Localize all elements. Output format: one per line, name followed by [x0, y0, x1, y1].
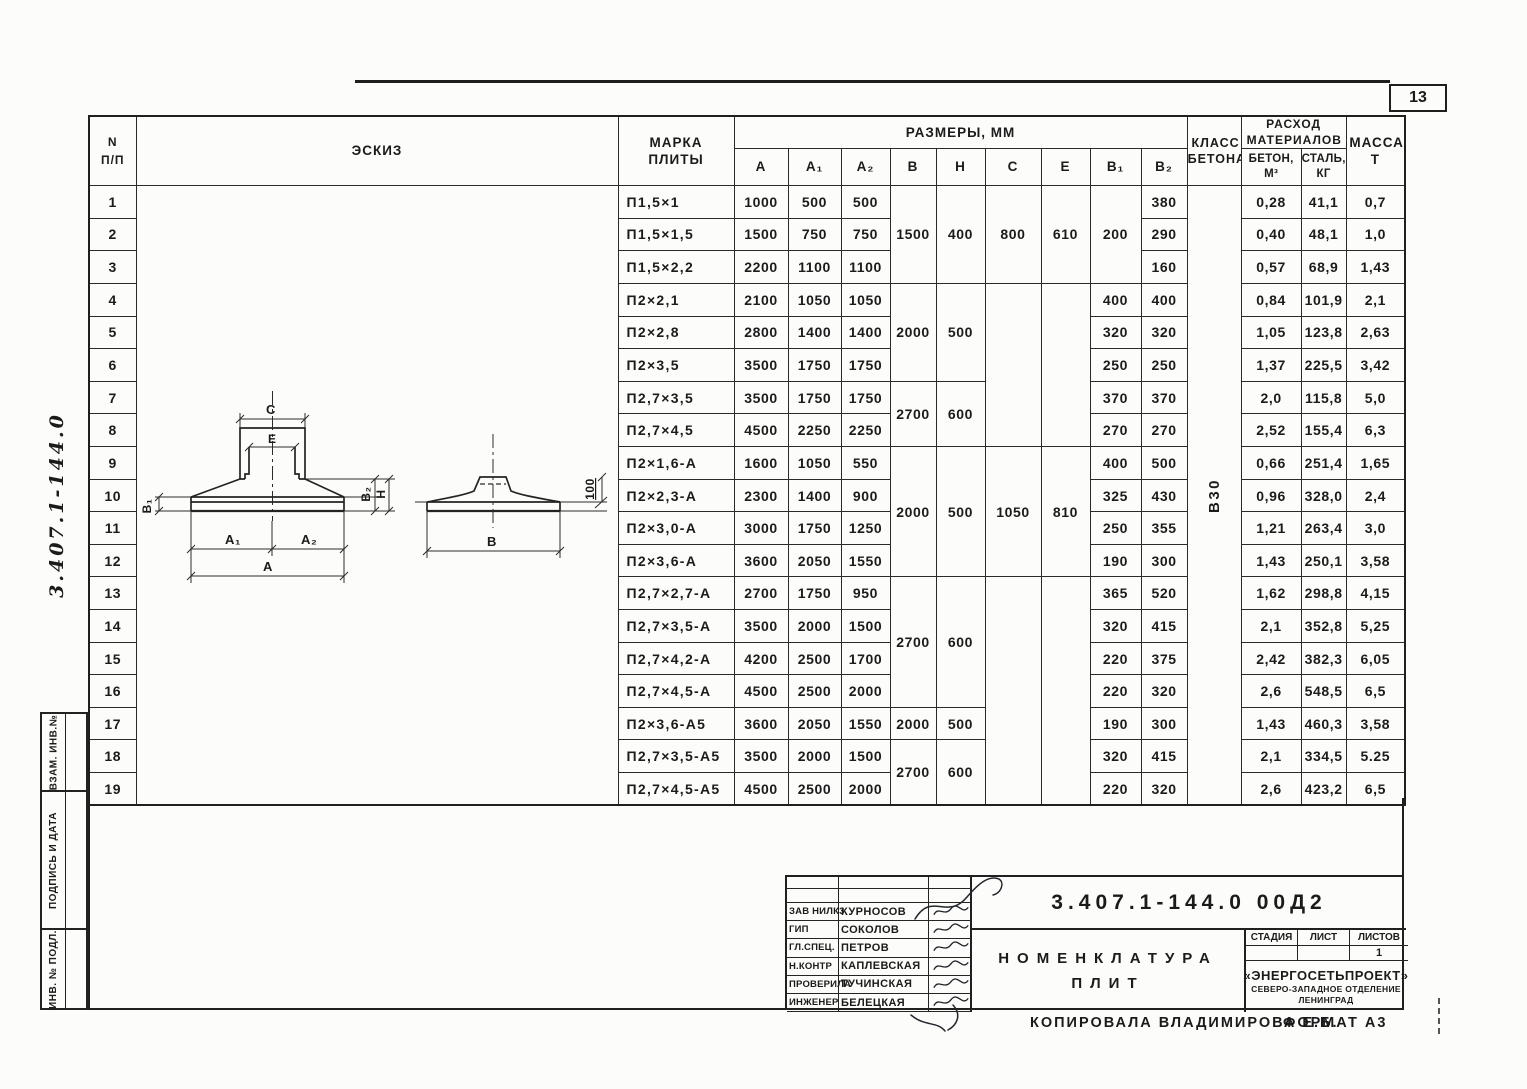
header-consumption: Расход материалов	[1241, 116, 1346, 149]
signature-role: ГИП	[787, 921, 839, 939]
table-cell: 300	[1141, 707, 1187, 740]
table-cell: 2000	[890, 707, 936, 740]
table-cell: 0,40	[1241, 218, 1301, 251]
table-cell: 4200	[734, 642, 788, 675]
table-cell: 220	[1090, 642, 1141, 675]
table-cell: 2,52	[1241, 414, 1301, 447]
signature-table: Зав НИЛК3Курносов ГИПСоколов Гл.спец.Пет…	[787, 877, 972, 1012]
mark-cell: П2,7×4,2-А	[618, 642, 734, 675]
table-cell: 220	[1090, 675, 1141, 708]
table-cell: 600	[936, 577, 985, 707]
table-cell: 13	[89, 577, 136, 610]
table-cell: 0,66	[1241, 446, 1301, 479]
table-cell: 520	[1141, 577, 1187, 610]
table-cell: 500	[841, 186, 890, 219]
fold-mark	[1438, 998, 1440, 1034]
table-cell: 548,5	[1301, 675, 1346, 708]
table-cell: 16	[89, 675, 136, 708]
table-cell: 1600	[734, 446, 788, 479]
table-cell: 1,43	[1346, 251, 1405, 284]
table-cell: 430	[1141, 479, 1187, 512]
header-row-number: N п/п	[89, 116, 136, 186]
strip-label-box: Инв. № подл.	[42, 930, 66, 1008]
header-dim-a2: А₂	[841, 149, 890, 186]
header-dimensions: Размеры, мм	[734, 116, 1187, 149]
table-cell: 0,84	[1241, 283, 1301, 316]
dim-label-b2: В₂	[359, 487, 373, 502]
signature-name	[839, 877, 929, 889]
table-cell: 500	[788, 186, 841, 219]
table-cell: 5,25	[1346, 610, 1405, 643]
table-cell: 370	[1090, 381, 1141, 414]
mark-cell: П1,5×2,2	[618, 251, 734, 284]
header-concrete-volume-label: Бетон, м³	[1242, 152, 1301, 183]
mark-cell: П1,5×1	[618, 186, 734, 219]
table-cell: 15	[89, 642, 136, 675]
table-cell: 9	[89, 446, 136, 479]
table-cell: 200	[1090, 186, 1141, 284]
table-cell: 155,4	[1301, 414, 1346, 447]
header-sketch: Эскиз	[136, 116, 618, 186]
table-cell: 460,3	[1301, 707, 1346, 740]
stage-label: Стадия	[1246, 930, 1298, 946]
header-dim-a: А	[734, 149, 788, 186]
signature-cell	[929, 994, 972, 1012]
mark-cell: П2,7×3,5-А5	[618, 740, 734, 773]
header-dim-c: С	[985, 149, 1041, 186]
table-cell: 352,8	[1301, 610, 1346, 643]
mark-cell: П2×3,0-А	[618, 512, 734, 545]
sheet-label: Лист	[1298, 930, 1350, 946]
nomenclature-table: N п/п Эскиз Марка плиты Размеры, мм Клас…	[88, 115, 1406, 806]
header-steel-weight: Сталь, кг	[1301, 149, 1346, 186]
table-cell: 1550	[841, 544, 890, 577]
table-cell: 41,1	[1301, 186, 1346, 219]
table-cell: 1000	[734, 186, 788, 219]
table-cell: 1750	[788, 381, 841, 414]
dim-label-a2: А₂	[301, 532, 317, 547]
table-cell: 190	[1090, 707, 1141, 740]
table-cell: 2,1	[1346, 283, 1405, 316]
table-cell: 2250	[841, 414, 890, 447]
table-cell: 3,42	[1346, 349, 1405, 382]
table-cell: 950	[841, 577, 890, 610]
strip-label: Инв. № подл.	[48, 930, 59, 1009]
table-cell: 600	[936, 740, 985, 805]
table-cell: 7	[89, 381, 136, 414]
table-cell: 48,1	[1301, 218, 1346, 251]
header-mass: Масса, т	[1346, 116, 1405, 186]
sheets-value: 1	[1350, 946, 1408, 961]
table-cell: 2,0	[1241, 381, 1301, 414]
table-cell: 320	[1090, 740, 1141, 773]
table-cell: 1	[89, 186, 136, 219]
table-cell: 298,8	[1301, 577, 1346, 610]
table-cell: 500	[936, 283, 985, 381]
signature-cell	[929, 877, 972, 889]
header-dim-b2: В₂	[1141, 149, 1187, 186]
header-dim-e: е	[1041, 149, 1090, 186]
mark-cell: П2,7×2,7-А	[618, 577, 734, 610]
table-cell	[1041, 577, 1090, 805]
mark-cell: П2,7×4,5-А	[618, 675, 734, 708]
drawing-sheet: 13 3.407.1-144.0 Взам. инв.№ Подпись и д…	[0, 0, 1527, 1089]
signature-scribble	[931, 995, 971, 1010]
table-cell: 12	[89, 544, 136, 577]
table-cell: 1050	[985, 446, 1041, 576]
mark-cell: П2×3,5	[618, 349, 734, 382]
table-cell: 3	[89, 251, 136, 284]
concrete-class-cell: В30	[1187, 186, 1241, 806]
mark-cell: П2×2,3-А	[618, 479, 734, 512]
table-cell: 5	[89, 316, 136, 349]
mark-cell: П1,5×1,5	[618, 218, 734, 251]
table-cell: 2	[89, 218, 136, 251]
table-cell: 2300	[734, 479, 788, 512]
title-block: Зав НИЛК3Курносов ГИПСоколов Гл.спец.Пет…	[785, 875, 1404, 1010]
signature-scribble	[931, 940, 971, 955]
table-cell: 810	[1041, 446, 1090, 576]
table-cell: 1,21	[1241, 512, 1301, 545]
table-cell: 1050	[788, 446, 841, 479]
signature-name: Петров	[839, 939, 929, 957]
stage-value-row: 1	[1246, 946, 1406, 961]
left-margin-strip: Взам. инв.№ Подпись и дата Инв. № подл.	[40, 712, 88, 1010]
header-mark: Марка плиты	[618, 116, 734, 186]
table-cell: 270	[1090, 414, 1141, 447]
table-cell: 500	[936, 446, 985, 576]
table-cell: 17	[89, 707, 136, 740]
table-cell: 68,9	[1301, 251, 1346, 284]
table-cell: 11	[89, 512, 136, 545]
table-cell: 3500	[734, 381, 788, 414]
drawing-title: Номенклатура плит	[972, 930, 1244, 1012]
table-cell: 8	[89, 414, 136, 447]
side-doc-number-text: 3.407.1-144.0	[46, 412, 68, 598]
table-cell: 5,0	[1346, 381, 1405, 414]
table-cell	[985, 283, 1041, 446]
table-cell: 2700	[734, 577, 788, 610]
table-cell: 0,57	[1241, 251, 1301, 284]
stage-value	[1246, 946, 1298, 961]
strip-cell-inv: Инв. № подл.	[42, 930, 86, 1008]
table-cell: 1,62	[1241, 577, 1301, 610]
page-number-box: 13	[1389, 84, 1447, 112]
organization-name: «ЭНЕРГОСЕТЬПРОЕКТ»	[1244, 968, 1409, 984]
signature-role: Гл.спец.	[787, 939, 839, 957]
table-cell: 14	[89, 610, 136, 643]
signature-cell	[929, 976, 972, 994]
signature-name: Каплевская	[839, 958, 929, 976]
table-cell: 2700	[890, 381, 936, 446]
table-cell: 1500	[890, 186, 936, 284]
table-cell: 5.25	[1346, 740, 1405, 773]
strip-cell-podpis: Подпись и дата	[42, 792, 86, 930]
signature-cell	[929, 939, 972, 957]
table-cell: 400	[1141, 283, 1187, 316]
table-cell: 320	[1141, 675, 1187, 708]
table-cell: 2,63	[1346, 316, 1405, 349]
table-cell: 115,8	[1301, 381, 1346, 414]
strip-cell-vzam: Взам. инв.№	[42, 714, 86, 792]
table-cell: 3500	[734, 610, 788, 643]
dim-label-b: В	[487, 534, 497, 549]
stage-org-box: Стадия Лист Листов 1 «ЭНЕРГОСЕТЬПРОЕКТ» …	[1244, 930, 1406, 1012]
table-cell: 2,1	[1241, 610, 1301, 643]
table-cell: 2700	[890, 740, 936, 805]
table-cell: 1,65	[1346, 446, 1405, 479]
table-cell: 3,58	[1346, 707, 1405, 740]
table-cell: 160	[1141, 251, 1187, 284]
strip-label-box: Подпись и дата	[42, 792, 66, 928]
table-cell: 270	[1141, 414, 1187, 447]
dim-label-a1: А₁	[225, 532, 241, 547]
header-no-top: N	[90, 133, 136, 151]
table-cell: 1100	[841, 251, 890, 284]
table-cell: 550	[841, 446, 890, 479]
table-cell: 2000	[788, 740, 841, 773]
signature-scribble	[931, 922, 971, 937]
strip-label-box: Взам. инв.№	[42, 714, 66, 790]
table-cell: 1400	[788, 479, 841, 512]
sketch-cell: С е В₁ В₂ Н А₁ А₂ А	[136, 186, 618, 806]
table-cell: 10	[89, 479, 136, 512]
table-cell: 1750	[841, 381, 890, 414]
dim-label-b1: В₁	[140, 499, 154, 514]
header-dim-h: Н	[936, 149, 985, 186]
signature-cell	[929, 889, 972, 903]
table-cell: 1750	[841, 349, 890, 382]
signature-role	[787, 877, 839, 889]
table-cell	[985, 577, 1041, 805]
table-cell: 1700	[841, 642, 890, 675]
table-row: 1 С е В₁ В₂ Н	[89, 186, 1405, 219]
mark-cell: П2,7×3,5	[618, 381, 734, 414]
dim-label-h: Н	[374, 490, 388, 499]
table-cell: 2200	[734, 251, 788, 284]
stage-header-row: Стадия Лист Листов	[1246, 930, 1406, 946]
organization-box: «ЭНЕРГОСЕТЬПРОЕКТ» Северо-Западное отдел…	[1246, 961, 1406, 1012]
header-mass-label: Масса, т	[1349, 134, 1401, 169]
table-cell: 3600	[734, 544, 788, 577]
table-cell: 6,05	[1346, 642, 1405, 675]
signature-name	[839, 889, 929, 903]
signature-name: Курносов	[839, 903, 929, 921]
table-cell: 263,4	[1301, 512, 1346, 545]
table-cell: 1400	[788, 316, 841, 349]
header-dim-a1: А₁	[788, 149, 841, 186]
table-cell: 382,3	[1301, 642, 1346, 675]
mark-cell: П2×1,6-А	[618, 446, 734, 479]
sheet-top-rule	[355, 80, 1390, 83]
plate-cross-section-sketch: С е В₁ В₂ Н А₁ А₂ А	[137, 186, 619, 804]
table-cell: 1,0	[1346, 218, 1405, 251]
table-cell: 3500	[734, 349, 788, 382]
concrete-class-text: В30	[1206, 478, 1223, 513]
table-cell: 2800	[734, 316, 788, 349]
signature-cell	[929, 921, 972, 939]
table-cell: 2000	[890, 283, 936, 381]
strip-label: Взам. инв.№	[48, 714, 59, 790]
format-note: Формат А3	[1283, 1015, 1387, 1031]
table-cell: 1050	[788, 283, 841, 316]
table-cell: 2250	[788, 414, 841, 447]
signature-role: Проверила	[787, 976, 839, 994]
drawing-title-line2: плит	[1071, 975, 1144, 992]
dim-label-a: А	[263, 559, 273, 574]
table-cell: 2,6	[1241, 675, 1301, 708]
table-cell: 1750	[788, 577, 841, 610]
signature-scribble	[931, 904, 971, 919]
table-cell: 18	[89, 740, 136, 773]
table-cell: 1,43	[1241, 707, 1301, 740]
signature-cell	[929, 958, 972, 976]
table-cell: 320	[1141, 316, 1187, 349]
table-cell: 3000	[734, 512, 788, 545]
document-number: 3.407.1-144.0 00Д2	[972, 877, 1406, 930]
organization-branch: Северо-Западное отделение	[1251, 984, 1401, 995]
table-cell: 1500	[841, 610, 890, 643]
table-cell: 415	[1141, 740, 1187, 773]
mark-cell: П2×2,1	[618, 283, 734, 316]
table-cell: 3500	[734, 740, 788, 773]
table-cell: 3600	[734, 707, 788, 740]
nomenclature-tbody: 1 С е В₁ В₂ Н	[89, 186, 1405, 806]
header-dim-b1: В₁	[1090, 149, 1141, 186]
organization-city: Ленинград	[1299, 995, 1354, 1006]
table-cell: 800	[985, 186, 1041, 284]
dim-label-e: е	[268, 432, 277, 446]
table-cell: 1750	[788, 349, 841, 382]
signature-role: Н.контр	[787, 958, 839, 976]
signature-name: Белецкая	[839, 994, 929, 1012]
signature-role	[787, 889, 839, 903]
table-cell: 290	[1141, 218, 1187, 251]
table-cell: 123,8	[1301, 316, 1346, 349]
table-cell: 1500	[734, 218, 788, 251]
table-cell: 1050	[841, 283, 890, 316]
sheets-label: Листов	[1350, 930, 1408, 946]
side-doc-number: 3.407.1-144.0	[40, 380, 74, 630]
table-cell: 400	[936, 186, 985, 284]
table-cell: 400	[1090, 446, 1141, 479]
signature-scribble	[931, 959, 971, 974]
table-cell: 225,5	[1301, 349, 1346, 382]
table-cell: 250,1	[1301, 544, 1346, 577]
table-cell	[1041, 283, 1090, 446]
table-cell: 0,96	[1241, 479, 1301, 512]
table-cell: 750	[788, 218, 841, 251]
table-cell: 610	[1041, 186, 1090, 284]
mark-cell: П2×3,6-А5	[618, 707, 734, 740]
table-cell: 2,1	[1241, 740, 1301, 773]
table-cell: 380	[1141, 186, 1187, 219]
mark-cell: П2,7×4,5	[618, 414, 734, 447]
table-cell: 1750	[788, 512, 841, 545]
table-cell: 2,4	[1346, 479, 1405, 512]
strip-label: Подпись и дата	[48, 811, 59, 908]
drawing-title-line1: Номенклатура	[998, 950, 1218, 967]
table-cell: 4500	[734, 675, 788, 708]
table-cell: 2000	[788, 610, 841, 643]
table-cell: 2050	[788, 707, 841, 740]
table-cell: 6,3	[1346, 414, 1405, 447]
header-mark-label: Марка плиты	[644, 134, 708, 169]
table-cell: 320	[1090, 316, 1141, 349]
header-steel-weight-label: Сталь, кг	[1302, 152, 1346, 183]
header-consumption-label: Расход материалов	[1247, 117, 1341, 148]
signature-role: Инженер	[787, 994, 839, 1012]
table-cell: 251,4	[1301, 446, 1346, 479]
table-cell: 900	[841, 479, 890, 512]
table-cell: 334,5	[1301, 740, 1346, 773]
table-cell: 320	[1090, 610, 1141, 643]
table-cell: 1500	[841, 740, 890, 773]
table-cell: 750	[841, 218, 890, 251]
table-cell: 4	[89, 283, 136, 316]
table-cell: 3,0	[1346, 512, 1405, 545]
table-cell: 3,58	[1346, 544, 1405, 577]
table-cell: 0,7	[1346, 186, 1405, 219]
table-cell: 500	[936, 707, 985, 740]
mark-cell: П2,7×3,5-А	[618, 610, 734, 643]
table-cell: 1250	[841, 512, 890, 545]
table-cell: 2700	[890, 577, 936, 707]
table-cell: 4500	[734, 414, 788, 447]
table-cell: 6,5	[1346, 675, 1405, 708]
table-cell: 250	[1090, 512, 1141, 545]
header-concrete-volume: Бетон, м³	[1241, 149, 1301, 186]
header-concrete-class: Класс бетона	[1187, 116, 1241, 186]
table-cell: 600	[936, 381, 985, 446]
table-cell: 101,9	[1301, 283, 1346, 316]
table-cell: 1400	[841, 316, 890, 349]
table-cell: 2000	[841, 675, 890, 708]
table-cell: 1,05	[1241, 316, 1301, 349]
signature-name: Тучинская	[839, 976, 929, 994]
table-cell: 190	[1090, 544, 1141, 577]
table-cell: 250	[1090, 349, 1141, 382]
table-cell: 370	[1141, 381, 1187, 414]
table-cell: 2,42	[1241, 642, 1301, 675]
mark-cell: П2×3,6-А	[618, 544, 734, 577]
signature-name: Соколов	[839, 921, 929, 939]
table-cell: 1100	[788, 251, 841, 284]
table-cell: 325	[1090, 479, 1141, 512]
table-cell: 2100	[734, 283, 788, 316]
table-cell: 375	[1141, 642, 1187, 675]
table-cell: 2500	[788, 642, 841, 675]
table-cell: 400	[1090, 283, 1141, 316]
header-dim-b: В	[890, 149, 936, 186]
mark-cell: П2×2,8	[618, 316, 734, 349]
table-cell: 500	[1141, 446, 1187, 479]
table-cell: 365	[1090, 577, 1141, 610]
dim-label-100: 100	[583, 478, 597, 500]
table-cell: 328,0	[1301, 479, 1346, 512]
table-cell: 1,43	[1241, 544, 1301, 577]
signature-cell	[929, 903, 972, 921]
table-cell: 6	[89, 349, 136, 382]
dim-label-c: С	[266, 402, 276, 417]
table-cell: 1,37	[1241, 349, 1301, 382]
header-no-bottom: п/п	[90, 151, 136, 169]
table-cell: 2000	[890, 446, 936, 576]
header-concrete-class-label: Класс бетона	[1188, 135, 1242, 168]
table-cell: 1550	[841, 707, 890, 740]
table-cell: 0,28	[1241, 186, 1301, 219]
table-cell: 415	[1141, 610, 1187, 643]
